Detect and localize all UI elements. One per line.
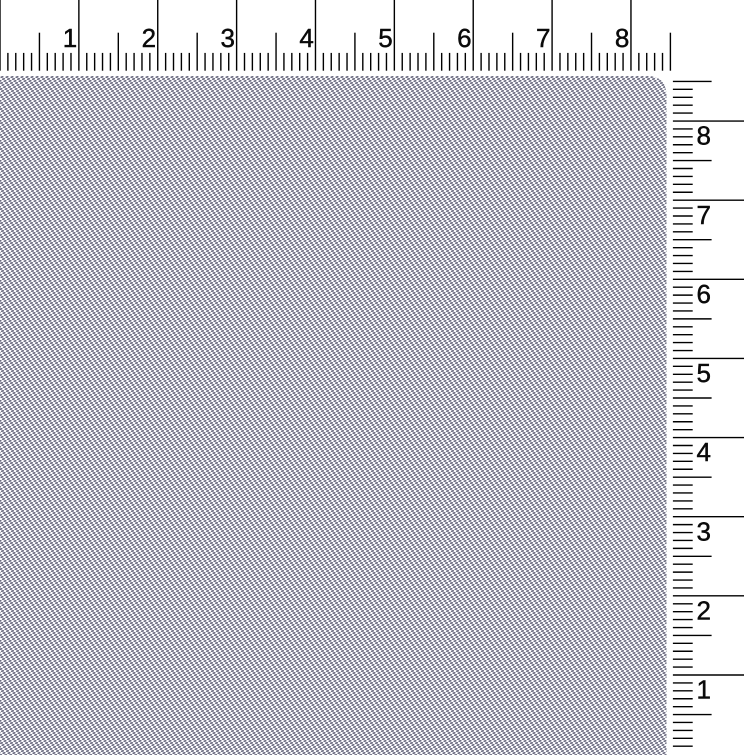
svg-text:5: 5 [697, 358, 711, 388]
svg-text:6: 6 [457, 23, 471, 53]
svg-text:3: 3 [697, 516, 711, 546]
svg-text:4: 4 [299, 23, 313, 53]
svg-text:1: 1 [63, 23, 77, 53]
svg-text:8: 8 [615, 23, 629, 53]
svg-text:7: 7 [697, 200, 711, 230]
svg-text:1: 1 [697, 675, 711, 705]
svg-text:6: 6 [697, 279, 711, 309]
svg-text:4: 4 [697, 437, 711, 467]
svg-text:2: 2 [697, 595, 711, 625]
svg-text:5: 5 [378, 23, 392, 53]
svg-text:8: 8 [697, 121, 711, 151]
svg-text:7: 7 [536, 23, 550, 53]
svg-text:3: 3 [221, 23, 235, 53]
svg-text:2: 2 [142, 23, 156, 53]
